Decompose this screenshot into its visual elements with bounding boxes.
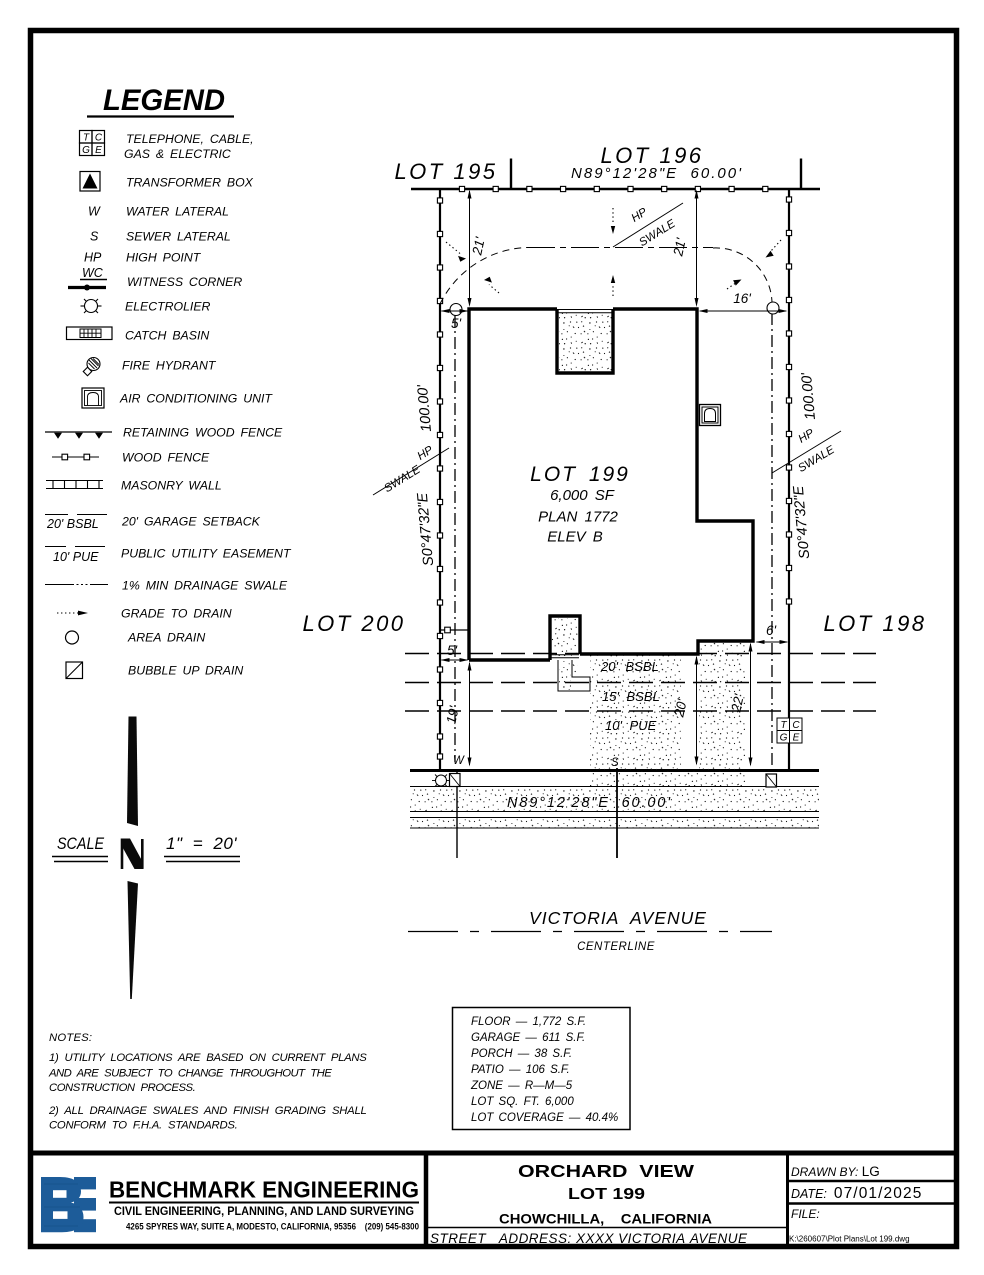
svg-text:2) ALL DRAINAGE SWALES AND FIN: 2) ALL DRAINAGE SWALES AND FINISH GRADIN… bbox=[48, 1105, 367, 1117]
svg-text:T: T bbox=[780, 720, 787, 731]
svg-text:CENTERLINE: CENTERLINE bbox=[577, 941, 655, 953]
svg-text:G: G bbox=[780, 733, 788, 744]
svg-text:ORCHARD VIEW: ORCHARD VIEW bbox=[518, 1161, 695, 1181]
svg-text:LOT 199: LOT 199 bbox=[568, 1186, 645, 1203]
svg-text:GAS & ELECTRIC: GAS & ELECTRIC bbox=[124, 147, 231, 161]
svg-text:HP: HP bbox=[797, 427, 817, 446]
svg-text:21': 21' bbox=[670, 236, 689, 258]
svg-text:VICTORIA AVENUE: VICTORIA AVENUE bbox=[529, 908, 707, 928]
svg-text:C: C bbox=[792, 720, 800, 731]
svg-text:PUBLIC UTILITY EASEMENT: PUBLIC UTILITY EASEMENT bbox=[121, 547, 292, 561]
svg-text:W: W bbox=[88, 205, 101, 219]
svg-text:BENCHMARK ENGINEERING: BENCHMARK ENGINEERING bbox=[109, 1177, 419, 1203]
svg-text:AIR CONDITIONING UNIT: AIR CONDITIONING UNIT bbox=[119, 392, 273, 406]
svg-text:BUBBLE UP DRAIN: BUBBLE UP DRAIN bbox=[128, 664, 243, 678]
svg-text:FIRE HYDRANT: FIRE HYDRANT bbox=[122, 359, 217, 373]
svg-text:DATE: 07/01/2025: DATE: 07/01/2025 bbox=[791, 1185, 922, 1202]
svg-text:1) UTILITY LOCATIONS ARE BASED: 1) UTILITY LOCATIONS ARE BASED ON CURREN… bbox=[49, 1052, 367, 1064]
svg-text:ZONE — R—M—5: ZONE — R—M—5 bbox=[470, 1080, 573, 1092]
svg-text:S: S bbox=[611, 757, 619, 769]
svg-text:CONFORM TO F.H.A. STANDARDS.: CONFORM TO F.H.A. STANDARDS. bbox=[49, 1120, 238, 1132]
svg-text:WITNESS CORNER: WITNESS CORNER bbox=[127, 275, 242, 289]
svg-text:16': 16' bbox=[733, 291, 751, 306]
svg-text:S: S bbox=[90, 230, 99, 244]
svg-text:100.00': 100.00' bbox=[415, 383, 435, 433]
svg-text:GARAGE — 611 S.F.: GARAGE — 611 S.F. bbox=[471, 1032, 585, 1044]
svg-text:20' BSBL: 20' BSBL bbox=[46, 517, 99, 531]
svg-text:S0°47'32"E: S0°47'32"E bbox=[791, 485, 813, 560]
svg-text:20' GARAGE SETBACK: 20' GARAGE SETBACK bbox=[121, 515, 261, 529]
svg-text:21': 21' bbox=[469, 235, 488, 257]
svg-text:G: G bbox=[82, 145, 90, 156]
svg-text:10' PUE: 10' PUE bbox=[605, 718, 657, 733]
svg-text:MASONRY WALL: MASONRY WALL bbox=[121, 479, 222, 493]
svg-text:HIGH POINT: HIGH POINT bbox=[126, 251, 202, 265]
svg-text:PLAN 1772: PLAN 1772 bbox=[538, 509, 618, 526]
svg-text:6,000 SF: 6,000 SF bbox=[550, 487, 615, 504]
svg-text:PATIO — 106 S.F.: PATIO — 106 S.F. bbox=[471, 1064, 570, 1076]
svg-text:K:\260607\Plot Plans\Lot 199.d: K:\260607\Plot Plans\Lot 199.dwg bbox=[789, 1235, 910, 1244]
svg-text:ELECTROLIER: ELECTROLIER bbox=[125, 300, 211, 314]
svg-text:SEWER LATERAL: SEWER LATERAL bbox=[126, 230, 231, 244]
svg-text:HP: HP bbox=[629, 206, 649, 225]
svg-text:CATCH BASIN: CATCH BASIN bbox=[125, 329, 209, 343]
svg-text:4265 SPYRES WAY, SUITE A, MODE: 4265 SPYRES WAY, SUITE A, MODESTO, CALIF… bbox=[126, 1222, 419, 1232]
svg-text:DRAWN BY: LG: DRAWN BY: LG bbox=[791, 1164, 880, 1179]
svg-text:HP: HP bbox=[415, 444, 435, 463]
svg-text:CIVIL ENGINEERING, PLANNING, A: CIVIL ENGINEERING, PLANNING, AND LAND SU… bbox=[114, 1206, 414, 1218]
svg-text:LOT COVERAGE — 40.4%: LOT COVERAGE — 40.4% bbox=[471, 1112, 618, 1124]
svg-text:GRADE TO DRAIN: GRADE TO DRAIN bbox=[121, 607, 232, 621]
svg-text:5': 5' bbox=[451, 316, 462, 331]
svg-text:W: W bbox=[453, 755, 465, 767]
svg-text:FILE:: FILE: bbox=[791, 1207, 820, 1221]
svg-text:LOT 200: LOT 200 bbox=[302, 611, 405, 636]
svg-text:SWALE: SWALE bbox=[382, 464, 423, 496]
svg-text:5': 5' bbox=[447, 643, 458, 658]
svg-text:ELEV B: ELEV B bbox=[547, 529, 603, 546]
svg-text:LOT 198: LOT 198 bbox=[823, 611, 926, 636]
svg-text:T: T bbox=[83, 133, 90, 144]
svg-text:FLOOR — 1,772 S.F.: FLOOR — 1,772 S.F. bbox=[471, 1016, 586, 1028]
svg-text:LOT 199: LOT 199 bbox=[530, 463, 630, 486]
svg-text:AREA DRAIN: AREA DRAIN bbox=[127, 631, 205, 645]
svg-text:1% MIN DRAINAGE SWALE: 1% MIN DRAINAGE SWALE bbox=[122, 579, 288, 593]
svg-text:TRANSFORMER BOX: TRANSFORMER BOX bbox=[126, 176, 254, 190]
svg-text:HP: HP bbox=[84, 251, 102, 265]
svg-text:WC: WC bbox=[82, 266, 104, 280]
svg-text:1" = 20': 1" = 20' bbox=[166, 834, 237, 853]
svg-text:100.00': 100.00' bbox=[799, 371, 819, 421]
svg-text:LEGEND: LEGEND bbox=[103, 84, 225, 117]
svg-text:20': 20' bbox=[671, 697, 690, 719]
svg-text:C: C bbox=[95, 133, 103, 144]
svg-text:CHOWCHILLA, CALIFORNIA: CHOWCHILLA, CALIFORNIA bbox=[499, 1211, 712, 1227]
svg-text:WOOD FENCE: WOOD FENCE bbox=[122, 451, 210, 465]
svg-text:N89°12'28"E 60.00': N89°12'28"E 60.00' bbox=[507, 795, 671, 811]
svg-text:19': 19' bbox=[443, 704, 461, 725]
svg-text:SWALE: SWALE bbox=[796, 444, 837, 475]
svg-text:PORCH — 38 S.F.: PORCH — 38 S.F. bbox=[471, 1048, 572, 1060]
svg-text:LOT 195: LOT 195 bbox=[394, 159, 497, 184]
svg-text:20' BSBL: 20' BSBL bbox=[600, 659, 659, 674]
svg-text:E: E bbox=[793, 733, 800, 744]
svg-text:STREET ADDRESS: XXXX VICTORI: STREET ADDRESS: XXXX VICTORIA AVENUE bbox=[430, 1231, 748, 1246]
svg-text:RETAINING WOOD FENCE: RETAINING WOOD FENCE bbox=[123, 426, 283, 440]
svg-text:CONSTRUCTION PROCESS.: CONSTRUCTION PROCESS. bbox=[49, 1082, 196, 1094]
svg-text:TELEPHONE, CABLE,: TELEPHONE, CABLE, bbox=[126, 132, 254, 146]
svg-text:E: E bbox=[95, 145, 102, 156]
svg-text:S0°47'32"E: S0°47'32"E bbox=[415, 492, 437, 567]
svg-text:AND ARE SUBJECT TO CHANGE THRO: AND ARE SUBJECT TO CHANGE THROUGHOUT THE bbox=[48, 1068, 332, 1080]
svg-text:SCALE: SCALE bbox=[57, 834, 105, 853]
svg-text:LOT 196: LOT 196 bbox=[600, 143, 703, 168]
svg-text:15' BSBL: 15' BSBL bbox=[602, 689, 660, 704]
svg-text:LOT SQ. FT. 6,000: LOT SQ. FT. 6,000 bbox=[471, 1096, 574, 1108]
svg-text:10' PUE: 10' PUE bbox=[53, 550, 99, 564]
svg-text:NOTES:: NOTES: bbox=[49, 1032, 92, 1044]
svg-text:WATER LATERAL: WATER LATERAL bbox=[126, 205, 229, 219]
svg-text:6': 6' bbox=[766, 623, 777, 638]
